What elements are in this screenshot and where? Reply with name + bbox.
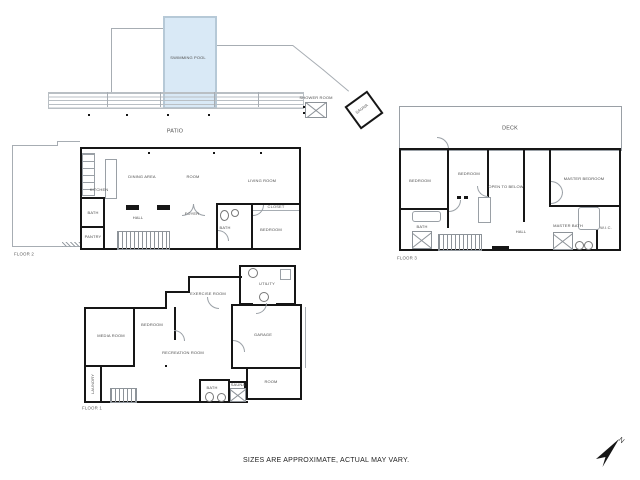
north-label: N xyxy=(617,436,625,445)
wall-segment xyxy=(239,265,296,267)
north-arrow-icon xyxy=(596,439,619,467)
wall-segment xyxy=(246,367,248,400)
wall-segment xyxy=(165,291,167,309)
washer-fixture xyxy=(248,268,258,278)
door-arc xyxy=(174,330,185,341)
floor1-label: FLOOR 1 xyxy=(82,406,102,410)
wall-segment xyxy=(165,291,190,293)
wall-segment xyxy=(199,379,230,381)
room-label-sauna: SAUNA xyxy=(231,383,246,387)
north-arrow: N xyxy=(588,432,632,476)
wall-segment xyxy=(199,379,201,403)
staircase xyxy=(110,388,137,403)
dryer-fixture xyxy=(259,292,269,302)
door-arc xyxy=(233,340,245,352)
floorplan-page: SWIMMING POOL PATIO SHOWER ROOM SAUNA xyxy=(0,0,640,480)
room-label-room: ROOM xyxy=(264,380,277,384)
room-label-recreation-room: RECREATION ROOM xyxy=(162,351,204,355)
wall-segment xyxy=(188,276,242,278)
garage-door-line xyxy=(305,307,306,368)
floor1-plan: EXERCISE ROOM UTILITY BEDROOM MEDIA ROOM… xyxy=(0,0,640,480)
room-label-bath: BATH xyxy=(207,386,218,390)
wall-segment xyxy=(239,265,241,305)
wall-segment xyxy=(133,307,135,367)
sink-fixture xyxy=(217,393,226,402)
room-label-laundry: LAUNDRY xyxy=(91,374,95,394)
post-dot xyxy=(165,365,167,367)
room-label-bedroom: BEDROOM xyxy=(141,323,163,327)
wall-segment xyxy=(246,398,302,400)
utility-cabinet xyxy=(280,269,291,280)
wall-segment xyxy=(84,307,165,309)
door-arc xyxy=(256,303,267,314)
room-label-media-room: MEDIA ROOM xyxy=(97,334,125,338)
room-label-garage: GARAGE xyxy=(254,333,272,337)
wall-segment xyxy=(300,367,302,400)
sauna-box xyxy=(230,388,246,402)
wall-segment xyxy=(84,307,86,403)
door-arc xyxy=(207,297,219,309)
room-label-utility: UTILITY xyxy=(259,282,275,286)
wall-segment xyxy=(84,365,135,367)
wall-segment xyxy=(188,276,190,293)
wall-segment xyxy=(100,365,102,403)
wall-segment xyxy=(294,265,296,305)
wall-segment xyxy=(231,367,302,369)
room-label-exercise-room: EXERCISE ROOM xyxy=(190,292,226,296)
wall-segment xyxy=(300,304,302,369)
disclaimer-text: SIZES ARE APPROXIMATE, ACTUAL MAY VARY. xyxy=(243,457,409,464)
wall-segment xyxy=(231,304,233,369)
toilet-fixture xyxy=(205,392,214,402)
